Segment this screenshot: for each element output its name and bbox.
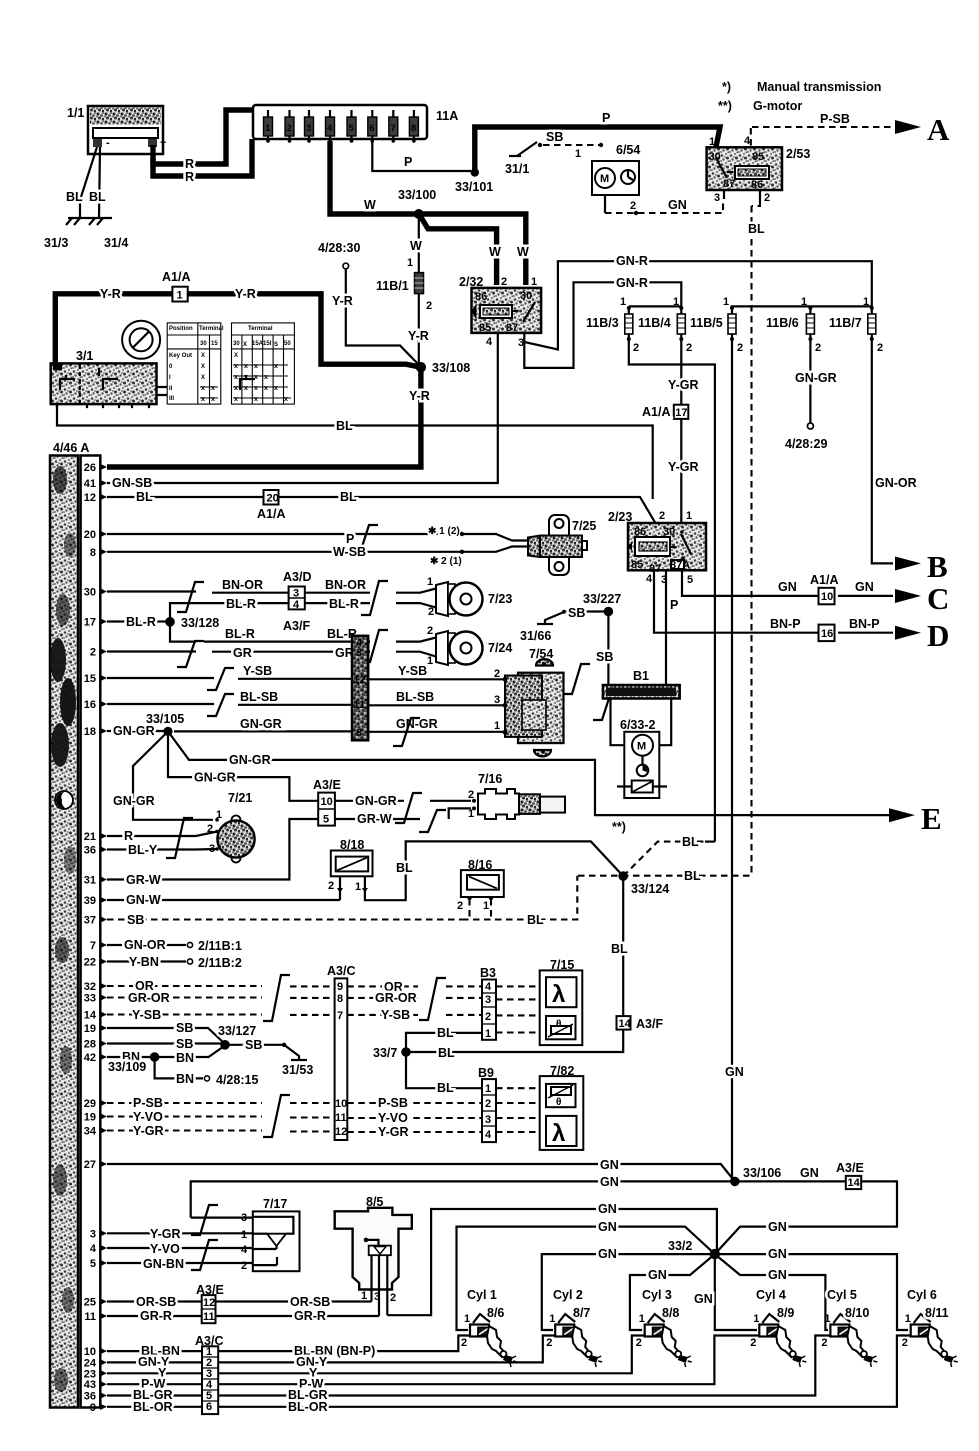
svg-text:x: x	[211, 385, 215, 392]
svg-text:BL-SB: BL-SB	[240, 690, 278, 704]
svg-text:20: 20	[84, 529, 96, 541]
svg-text:B3: B3	[480, 966, 496, 980]
svg-text:33/101: 33/101	[455, 180, 493, 194]
svg-text:1: 1	[673, 296, 679, 308]
svg-text:Y-GR: Y-GR	[133, 1124, 164, 1138]
svg-text:x: x	[244, 385, 248, 392]
svg-text:BL: BL	[336, 419, 353, 433]
svg-text:3: 3	[518, 337, 524, 349]
svg-text:M: M	[600, 173, 609, 185]
svg-text:GN-GR: GN-GR	[795, 371, 837, 385]
svg-text:B: B	[927, 549, 948, 584]
svg-text:11B/7: 11B/7	[829, 316, 862, 330]
svg-text:C: C	[927, 581, 949, 616]
svg-text:8: 8	[337, 993, 343, 1005]
svg-text:GN: GN	[598, 1220, 617, 1234]
svg-text:GN-GR: GN-GR	[240, 717, 282, 731]
svg-text:x: x	[254, 385, 258, 392]
svg-text:31/66: 31/66	[520, 629, 551, 643]
svg-text:31/1: 31/1	[505, 162, 529, 176]
svg-text:2: 2	[750, 1337, 756, 1349]
svg-text:Cyl 2: Cyl 2	[553, 1288, 583, 1302]
svg-text:2/53: 2/53	[786, 147, 810, 161]
svg-text:10: 10	[84, 1346, 96, 1358]
svg-text:A1/A: A1/A	[642, 405, 670, 419]
svg-text:34: 34	[84, 1126, 97, 1138]
svg-text:Cyl 5: Cyl 5	[827, 1288, 857, 1302]
svg-text:GR-OR: GR-OR	[128, 991, 170, 1005]
svg-text:x: x	[234, 396, 238, 403]
svg-text:33/227: 33/227	[583, 592, 621, 606]
svg-text:GR-W: GR-W	[357, 812, 392, 826]
svg-text:x: x	[234, 385, 238, 392]
svg-text:2/11B:2: 2/11B:2	[198, 956, 242, 970]
svg-text:BL: BL	[438, 1046, 455, 1060]
svg-text:x: x	[244, 374, 248, 381]
svg-text:GR: GR	[233, 646, 252, 660]
svg-text:1: 1	[483, 900, 489, 912]
svg-text:Y-VO: Y-VO	[133, 1110, 163, 1124]
svg-text:8/9: 8/9	[777, 1306, 794, 1320]
svg-text:A3/F: A3/F	[636, 1017, 663, 1031]
svg-text:30: 30	[200, 341, 207, 347]
svg-text:14: 14	[84, 1010, 97, 1022]
svg-text:A: A	[927, 112, 950, 147]
svg-text:20: 20	[267, 493, 279, 505]
svg-text:GN: GN	[768, 1268, 787, 1282]
svg-text:BL: BL	[748, 222, 765, 236]
svg-text:31/53: 31/53	[282, 1063, 313, 1077]
svg-text:21: 21	[84, 831, 96, 843]
svg-text:3: 3	[714, 192, 720, 204]
svg-text:4/28:15: 4/28:15	[216, 1073, 258, 1087]
svg-text:4/28:29: 4/28:29	[785, 437, 827, 451]
svg-text:33/7: 33/7	[373, 1046, 397, 1060]
svg-text:33/106: 33/106	[743, 1166, 781, 1180]
svg-text:2: 2	[461, 1337, 467, 1349]
svg-text:SB: SB	[546, 130, 563, 144]
svg-text:1: 1	[549, 1313, 555, 1325]
svg-text:Manual transmission: Manual transmission	[757, 80, 881, 94]
svg-text:2: 2	[328, 880, 334, 892]
svg-text:3: 3	[374, 1291, 380, 1303]
svg-text:BL-R: BL-R	[329, 597, 359, 611]
svg-text:2: 2	[494, 668, 500, 680]
svg-text:X: X	[201, 375, 205, 381]
svg-text:Y-R: Y-R	[235, 287, 256, 301]
svg-text:θ: θ	[556, 1097, 561, 1108]
svg-text:16: 16	[821, 628, 833, 640]
svg-text:x: x	[201, 385, 205, 392]
svg-text:x: x	[254, 363, 258, 370]
svg-text:x: x	[244, 363, 248, 370]
svg-text:✱ 2 (1): ✱ 2 (1)	[430, 556, 462, 567]
svg-text:SB: SB	[127, 913, 144, 927]
svg-text:17: 17	[84, 617, 96, 629]
svg-text:87: 87	[506, 322, 518, 334]
svg-text:7/16: 7/16	[478, 772, 502, 786]
svg-text:1: 1	[686, 510, 692, 522]
svg-text:GN: GN	[855, 580, 874, 594]
svg-text:2/11B:1: 2/11B:1	[198, 939, 242, 953]
svg-text:*): *)	[722, 80, 731, 94]
svg-text:BL: BL	[66, 190, 83, 204]
svg-text:19: 19	[84, 1112, 96, 1124]
svg-text:BL: BL	[611, 942, 628, 956]
svg-text:6/54: 6/54	[616, 143, 640, 157]
svg-text:Key Out: Key Out	[169, 353, 192, 359]
svg-text:36: 36	[84, 1391, 96, 1403]
svg-text:W: W	[364, 198, 376, 212]
svg-text:5: 5	[90, 1258, 96, 1270]
svg-text:P: P	[670, 598, 678, 612]
svg-text:Y-GR: Y-GR	[668, 460, 699, 474]
svg-text:x: x	[274, 385, 278, 392]
svg-text:7/25: 7/25	[572, 519, 596, 533]
svg-text:Terminal: Terminal	[248, 326, 273, 332]
svg-text:39: 39	[84, 895, 96, 907]
svg-text:SB: SB	[568, 606, 585, 620]
svg-text:GN: GN	[778, 580, 797, 594]
svg-text:BL-R: BL-R	[226, 597, 256, 611]
svg-text:37: 37	[84, 915, 96, 927]
svg-text:2: 2	[546, 1337, 552, 1349]
svg-text:31/3: 31/3	[44, 236, 68, 250]
svg-text:4: 4	[293, 599, 300, 611]
svg-text:1: 1	[355, 881, 361, 893]
svg-text:X: X	[234, 353, 238, 359]
svg-text:9: 9	[337, 981, 343, 993]
svg-text:Y-R: Y-R	[408, 329, 429, 343]
svg-text:11A: 11A	[436, 109, 458, 123]
svg-text:86: 86	[475, 291, 487, 303]
svg-text:X: X	[201, 364, 205, 370]
svg-text:7/21: 7/21	[228, 791, 252, 805]
svg-text:SB: SB	[176, 1037, 193, 1051]
svg-text:7/23: 7/23	[488, 592, 512, 606]
svg-text:16: 16	[84, 699, 96, 711]
svg-text:10: 10	[335, 1098, 347, 1110]
svg-text:P-SB: P-SB	[820, 112, 850, 126]
svg-text:30: 30	[520, 290, 532, 302]
svg-text:-: -	[106, 137, 110, 149]
svg-text:1: 1	[824, 1313, 830, 1325]
svg-text:2: 2	[815, 342, 821, 354]
svg-text:BL-OR: BL-OR	[133, 1400, 173, 1414]
svg-text:GR-W: GR-W	[126, 873, 161, 887]
svg-text:33/2: 33/2	[668, 1239, 692, 1253]
svg-text:X: X	[201, 353, 205, 359]
svg-text:33: 33	[84, 993, 96, 1005]
svg-text:1/1: 1/1	[67, 106, 84, 120]
svg-text:1: 1	[427, 576, 433, 588]
svg-text:Y-R: Y-R	[332, 294, 353, 308]
svg-text:BL-R: BL-R	[225, 627, 255, 641]
svg-text:BN-OR: BN-OR	[325, 578, 366, 592]
svg-text:2: 2	[686, 342, 692, 354]
svg-text:S: S	[274, 342, 278, 348]
svg-text:4: 4	[485, 1129, 492, 1141]
svg-text:**): **)	[612, 820, 626, 834]
svg-text:Y-GR: Y-GR	[378, 1125, 409, 1139]
svg-text:SB: SB	[245, 1038, 262, 1052]
svg-text:12: 12	[354, 674, 366, 686]
svg-text:87A: 87A	[670, 560, 690, 572]
svg-text:4: 4	[486, 336, 493, 348]
svg-text:1: 1	[753, 1313, 759, 1325]
svg-text:G-motor: G-motor	[753, 99, 802, 113]
svg-text:BL: BL	[437, 1026, 454, 1040]
svg-text:Cyl 1: Cyl 1	[467, 1288, 497, 1302]
svg-text:x: x	[201, 396, 205, 403]
svg-text:11B/3: 11B/3	[586, 316, 619, 330]
svg-text:x: x	[234, 363, 238, 370]
svg-text:33/105: 33/105	[146, 712, 184, 726]
svg-text:A3/F: A3/F	[283, 619, 310, 633]
svg-text:1: 1	[427, 655, 433, 667]
svg-text:W: W	[517, 245, 529, 259]
svg-text:x: x	[274, 363, 278, 370]
svg-text:6: 6	[206, 1401, 212, 1413]
svg-text:7/24: 7/24	[488, 641, 512, 655]
svg-text:GN-GR: GN-GR	[113, 794, 155, 808]
svg-text:λ: λ	[552, 1120, 565, 1147]
svg-text:2: 2	[428, 606, 434, 618]
svg-text:2: 2	[426, 300, 432, 312]
svg-text:15I: 15I	[263, 341, 272, 347]
svg-text:GN: GN	[600, 1175, 619, 1189]
svg-text:11: 11	[84, 1311, 96, 1323]
svg-text:2: 2	[241, 1260, 247, 1272]
svg-text:GN-GR: GN-GR	[194, 771, 236, 785]
svg-text:Y-VO: Y-VO	[378, 1111, 408, 1125]
svg-text:1: 1	[265, 123, 270, 133]
svg-text:BN: BN	[176, 1051, 194, 1065]
svg-text:BL: BL	[396, 861, 413, 875]
svg-text:BN-P: BN-P	[849, 617, 880, 631]
svg-text:III: III	[169, 396, 174, 402]
svg-text:1: 1	[407, 257, 413, 269]
svg-text:14: 14	[619, 1018, 632, 1030]
svg-text:2: 2	[636, 1337, 642, 1349]
svg-text:4: 4	[90, 1243, 97, 1255]
svg-text:2: 2	[630, 200, 636, 212]
svg-text:1: 1	[531, 276, 537, 288]
svg-text:17: 17	[675, 407, 687, 419]
svg-text:W: W	[410, 239, 422, 253]
svg-text:GR-OR: GR-OR	[375, 991, 417, 1005]
svg-text:A1/A: A1/A	[162, 270, 190, 284]
svg-text:P-SB: P-SB	[378, 1096, 408, 1110]
svg-text:1: 1	[177, 290, 183, 302]
svg-text:2: 2	[390, 1292, 396, 1304]
svg-text:GN-OR: GN-OR	[875, 476, 917, 490]
svg-text:Y-R: Y-R	[409, 389, 430, 403]
svg-text:28: 28	[84, 1039, 96, 1051]
svg-text:+: +	[160, 137, 166, 149]
svg-text:D: D	[927, 618, 949, 653]
svg-text:7: 7	[391, 123, 396, 133]
svg-text:GN-OR: GN-OR	[124, 938, 166, 952]
svg-text:Y-SB: Y-SB	[243, 664, 272, 678]
svg-text:8: 8	[411, 123, 416, 133]
svg-text:GN-W: GN-W	[126, 893, 161, 907]
svg-text:1: 1	[801, 296, 807, 308]
svg-text:33/108: 33/108	[432, 361, 470, 375]
svg-text:11B/5: 11B/5	[690, 316, 723, 330]
svg-text:32: 32	[84, 981, 96, 993]
svg-text:7/17: 7/17	[263, 1197, 287, 1211]
svg-text:87: 87	[723, 178, 735, 190]
svg-text:2: 2	[764, 192, 770, 204]
svg-text:R: R	[185, 157, 194, 171]
svg-text:GN: GN	[800, 1166, 819, 1180]
svg-text:W: W	[489, 245, 501, 259]
svg-text:1: 1	[639, 1313, 645, 1325]
svg-text:3: 3	[356, 647, 362, 659]
svg-text:85: 85	[631, 559, 643, 571]
svg-text:2: 2	[287, 123, 292, 133]
svg-text:M: M	[637, 741, 646, 753]
svg-text:W-SB: W-SB	[333, 545, 366, 559]
svg-text:GN: GN	[600, 1158, 619, 1172]
svg-text:Y-SB: Y-SB	[132, 1008, 161, 1022]
svg-text:Y-GR: Y-GR	[150, 1227, 181, 1241]
svg-text:1: 1	[709, 136, 715, 148]
svg-text:4: 4	[241, 1244, 248, 1256]
svg-text:33/128: 33/128	[181, 616, 219, 630]
svg-text:GN-GR: GN-GR	[113, 724, 155, 738]
svg-text:GN-BN: GN-BN	[143, 1257, 184, 1271]
svg-text:BN-P: BN-P	[770, 617, 801, 631]
svg-text:3: 3	[293, 588, 299, 600]
svg-text:86: 86	[751, 179, 763, 191]
svg-text:3: 3	[90, 1228, 96, 1240]
svg-text:x: x	[211, 396, 215, 403]
svg-text:2: 2	[485, 1098, 491, 1110]
svg-text:7: 7	[90, 940, 96, 952]
svg-text:42: 42	[84, 1052, 96, 1064]
svg-text:33/127: 33/127	[218, 1024, 256, 1038]
svg-text:2: 2	[485, 1011, 491, 1023]
svg-text:1: 1	[241, 1229, 247, 1241]
svg-text:OR-SB: OR-SB	[290, 1295, 330, 1309]
svg-text:GR-R: GR-R	[294, 1309, 326, 1323]
svg-text:P: P	[346, 532, 354, 546]
svg-text:1: 1	[575, 148, 581, 160]
svg-text:8: 8	[356, 727, 362, 739]
svg-text:Y-SB: Y-SB	[398, 664, 427, 678]
svg-text:P: P	[602, 111, 610, 125]
svg-text:II: II	[169, 386, 173, 392]
svg-text:4: 4	[646, 573, 653, 585]
svg-text:B1: B1	[633, 669, 649, 683]
svg-text:X: X	[243, 342, 247, 348]
svg-text:2: 2	[877, 342, 883, 354]
svg-text:A3/C: A3/C	[327, 964, 355, 978]
svg-text:Y-GR: Y-GR	[668, 378, 699, 392]
svg-text:Terminal: Terminal	[199, 326, 224, 332]
svg-text:x: x	[234, 374, 238, 381]
svg-text:7: 7	[337, 1010, 343, 1022]
svg-text:A3/E: A3/E	[313, 778, 341, 792]
svg-text:11B/6: 11B/6	[766, 316, 799, 330]
svg-text:1: 1	[361, 1290, 367, 1302]
svg-text:8/10: 8/10	[845, 1306, 869, 1320]
svg-text:GN: GN	[648, 1268, 667, 1282]
svg-text:BL-OR: BL-OR	[288, 1400, 328, 1414]
svg-text:2: 2	[633, 342, 639, 354]
svg-text:✱ 1 (2): ✱ 1 (2)	[428, 526, 460, 537]
svg-text:A1/A: A1/A	[810, 573, 838, 587]
svg-text:29: 29	[84, 1098, 96, 1110]
svg-text:λ: λ	[552, 981, 565, 1008]
svg-text:2: 2	[90, 647, 96, 659]
svg-text:Y-SB: Y-SB	[381, 1008, 410, 1022]
svg-text:4/28:30: 4/28:30	[318, 241, 360, 255]
svg-text:33/109: 33/109	[108, 1060, 146, 1074]
svg-text:36: 36	[84, 845, 96, 857]
svg-text:x: x	[264, 374, 268, 381]
svg-text:P: P	[404, 155, 412, 169]
svg-text:10: 10	[321, 796, 333, 808]
svg-text:1: 1	[494, 720, 500, 732]
svg-text:BL: BL	[136, 490, 153, 504]
svg-text:GN: GN	[598, 1247, 617, 1261]
svg-text:6: 6	[370, 123, 375, 133]
svg-text:2: 2	[501, 276, 507, 288]
svg-text:Y-BN: Y-BN	[129, 955, 159, 969]
svg-text:11: 11	[335, 1112, 347, 1124]
svg-text:BL: BL	[682, 835, 699, 849]
svg-text:11B/4: 11B/4	[638, 316, 671, 330]
svg-text:4/46 A: 4/46 A	[53, 441, 89, 455]
svg-text:5: 5	[349, 123, 354, 133]
svg-text:18: 18	[84, 726, 96, 738]
svg-text:SB: SB	[176, 1021, 193, 1035]
svg-text:4: 4	[485, 981, 492, 993]
svg-text:x: x	[254, 396, 258, 403]
svg-text:B9: B9	[478, 1066, 494, 1080]
svg-text:15A: 15A	[252, 341, 264, 347]
svg-text:Position: Position	[169, 326, 193, 332]
svg-text:R: R	[124, 829, 133, 843]
svg-text:10: 10	[821, 591, 833, 603]
svg-text:x: x	[254, 374, 258, 381]
svg-text:BN-OR: BN-OR	[222, 578, 263, 592]
svg-text:31: 31	[84, 875, 96, 887]
svg-text:2: 2	[737, 342, 743, 354]
svg-text:3: 3	[485, 1114, 491, 1126]
svg-text:GN-GR: GN-GR	[355, 794, 397, 808]
svg-text:GN: GN	[768, 1220, 787, 1234]
svg-text:Cyl 3: Cyl 3	[642, 1288, 672, 1302]
svg-text:19: 19	[84, 1023, 96, 1035]
svg-text:1: 1	[863, 296, 869, 308]
svg-text:11B/1: 11B/1	[376, 279, 409, 293]
svg-text:SB: SB	[596, 650, 613, 664]
svg-text:2: 2	[457, 900, 463, 912]
svg-text:8/11: 8/11	[925, 1306, 949, 1320]
svg-text:BL-R: BL-R	[126, 615, 156, 629]
svg-text:1: 1	[723, 296, 729, 308]
svg-text:Cyl 6: Cyl 6	[907, 1288, 937, 1302]
svg-text:4: 4	[327, 123, 332, 133]
svg-text:2: 2	[821, 1337, 827, 1349]
svg-text:3: 3	[494, 694, 500, 706]
svg-text:30: 30	[84, 587, 96, 599]
svg-text:11: 11	[203, 1311, 215, 1323]
